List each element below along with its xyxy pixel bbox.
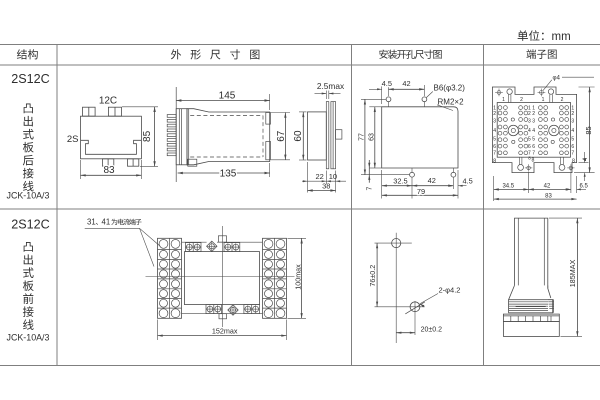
svg-text:6: 6 — [571, 144, 574, 150]
svg-text:JCK-10A/3: JCK-10A/3 — [7, 333, 50, 343]
svg-text:JCK-10A/3: JCK-10A/3 — [7, 191, 50, 201]
svg-text:41: 41 — [102, 218, 111, 227]
svg-text:8: 8 — [532, 158, 535, 164]
svg-text:2S: 2S — [67, 134, 79, 145]
svg-text:7: 7 — [493, 151, 496, 157]
svg-text:135: 135 — [220, 169, 237, 180]
svg-text:38: 38 — [322, 182, 330, 191]
svg-text:5: 5 — [532, 137, 535, 143]
svg-text:4: 4 — [532, 128, 535, 134]
svg-text:2: 2 — [493, 111, 496, 117]
svg-text:83: 83 — [545, 194, 552, 200]
svg-text:4: 4 — [528, 128, 531, 134]
svg-text:2: 2 — [571, 111, 574, 117]
svg-text:RM2×2: RM2×2 — [438, 97, 465, 106]
svg-text:79: 79 — [417, 187, 425, 196]
svg-text:8: 8 — [572, 159, 575, 165]
svg-text:83: 83 — [103, 165, 115, 176]
svg-text:4.5: 4.5 — [382, 79, 392, 88]
svg-text:4: 4 — [571, 128, 574, 134]
svg-text:3: 3 — [532, 118, 535, 124]
svg-text:4: 4 — [583, 157, 589, 161]
svg-text:185MAX: 185MAX — [568, 259, 577, 287]
svg-text:8: 8 — [493, 158, 496, 164]
svg-text:100max: 100max — [294, 264, 303, 290]
svg-text:20±0.2: 20±0.2 — [421, 327, 442, 334]
svg-text:34.5: 34.5 — [502, 183, 514, 189]
svg-text:7: 7 — [532, 151, 535, 157]
svg-text:2-φ4.2: 2-φ4.2 — [439, 285, 461, 294]
svg-text:85: 85 — [584, 126, 593, 134]
svg-text:3: 3 — [571, 118, 574, 124]
svg-text:31: 31 — [87, 218, 96, 227]
svg-text:85: 85 — [142, 130, 153, 142]
svg-text:6.5: 6.5 — [580, 184, 589, 190]
svg-text:B6(φ3.2): B6(φ3.2) — [434, 84, 466, 93]
svg-text:60: 60 — [293, 130, 304, 142]
svg-text:1: 1 — [542, 97, 545, 103]
svg-text:42: 42 — [428, 176, 436, 185]
svg-text:7: 7 — [367, 186, 374, 190]
svg-text:145: 145 — [219, 90, 236, 101]
svg-text:63: 63 — [369, 133, 376, 141]
svg-text:22: 22 — [316, 172, 324, 181]
svg-text:2S12C: 2S12C — [11, 218, 50, 232]
svg-text:6: 6 — [528, 144, 531, 150]
svg-text:7: 7 — [571, 151, 574, 157]
svg-text:77: 77 — [358, 133, 365, 141]
svg-text:152max: 152max — [212, 326, 238, 335]
svg-text:10: 10 — [329, 172, 337, 181]
svg-text:6: 6 — [493, 144, 496, 150]
svg-text:67: 67 — [276, 130, 287, 142]
svg-text:5: 5 — [493, 137, 496, 143]
svg-text:6: 6 — [532, 144, 535, 150]
svg-text:φ4: φ4 — [553, 74, 561, 81]
svg-text:4: 4 — [493, 128, 496, 134]
svg-text:76±0.2: 76±0.2 — [368, 265, 377, 287]
svg-text:1: 1 — [502, 97, 505, 103]
svg-text:5: 5 — [571, 137, 574, 143]
svg-text:3: 3 — [528, 118, 531, 124]
svg-text:3: 3 — [493, 118, 496, 124]
svg-text:mm: mm — [552, 31, 571, 43]
svg-text:12C: 12C — [99, 96, 117, 107]
svg-text:2.5max: 2.5max — [317, 81, 345, 91]
svg-text:42: 42 — [544, 183, 551, 189]
svg-text:2: 2 — [532, 111, 535, 117]
svg-text:4.5: 4.5 — [463, 177, 473, 186]
svg-text:5: 5 — [528, 137, 531, 143]
svg-text:2: 2 — [520, 97, 523, 103]
svg-text:32.5: 32.5 — [393, 176, 407, 185]
svg-text:2: 2 — [561, 97, 564, 103]
svg-text:2: 2 — [528, 111, 531, 117]
svg-text:42: 42 — [402, 79, 410, 88]
svg-text:2S12C: 2S12C — [11, 72, 50, 86]
